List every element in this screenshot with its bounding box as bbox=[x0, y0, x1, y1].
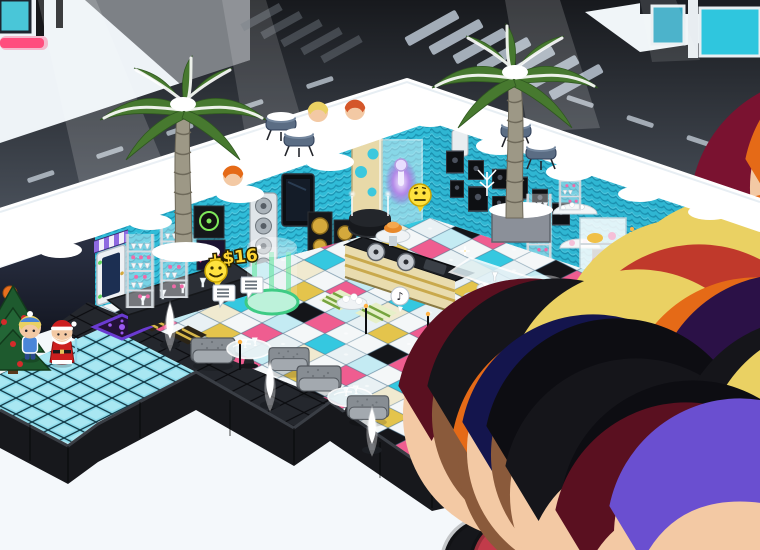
svg-text:♪: ♪ bbox=[396, 290, 403, 303]
vinyl-poster[interactable] bbox=[194, 206, 224, 238]
sofa[interactable] bbox=[191, 338, 235, 371]
game-viewport: +$16 ♪ bbox=[0, 0, 760, 550]
champagne-rack[interactable] bbox=[125, 234, 154, 308]
shop-window bbox=[700, 8, 760, 56]
